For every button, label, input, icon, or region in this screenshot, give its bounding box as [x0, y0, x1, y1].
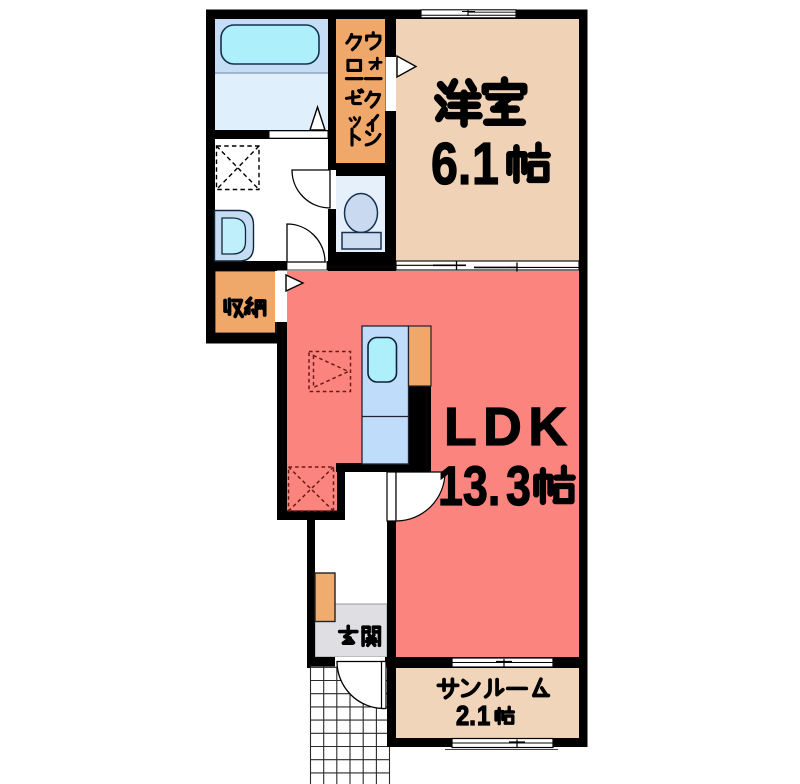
svg-text:6.: 6. — [431, 132, 471, 198]
svg-text:1: 1 — [472, 132, 499, 198]
svg-text:LDK: LDK — [444, 398, 573, 457]
svg-text:1: 1 — [477, 699, 490, 731]
svg-text:13.: 13. — [438, 454, 500, 517]
svg-text:2.: 2. — [456, 699, 476, 731]
svg-text:3: 3 — [506, 454, 531, 517]
